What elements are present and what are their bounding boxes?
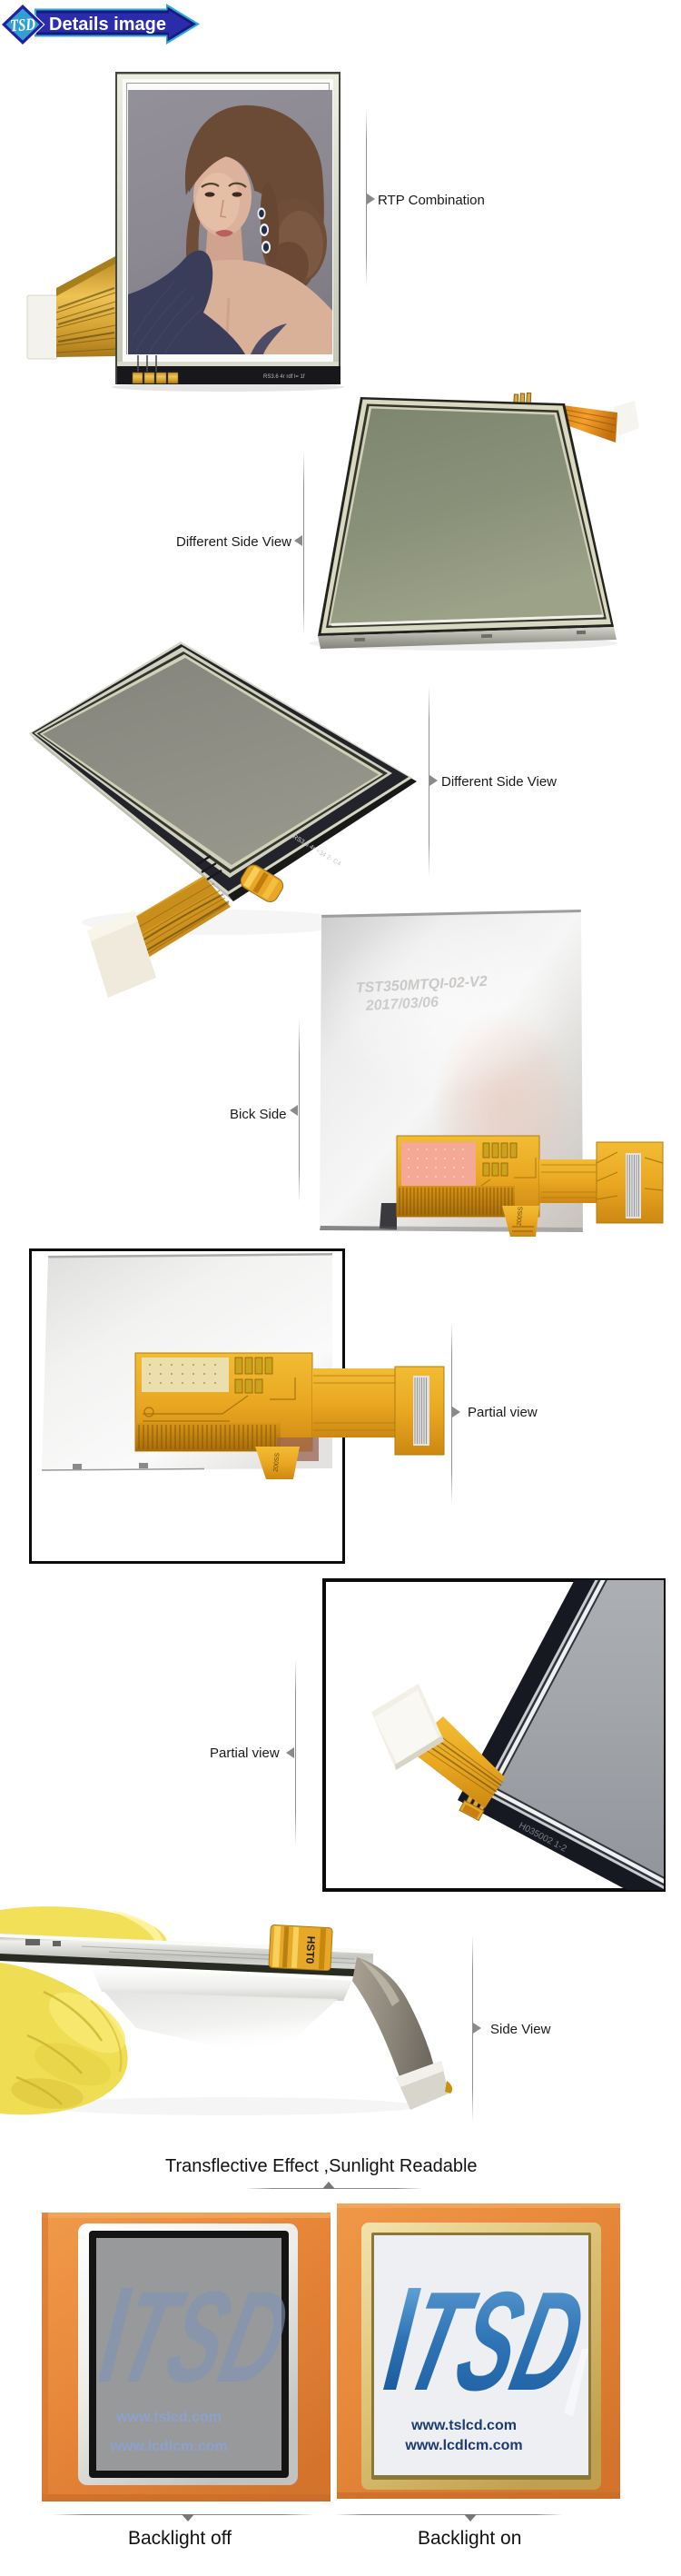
svg-text:TSD: TSD — [9, 15, 36, 36]
svg-text:www.lcdlcm.com: www.lcdlcm.com — [109, 2439, 227, 2454]
svg-text:www.tslcd.com: www.tslcd.com — [115, 2410, 222, 2425]
svg-text:www.tslcd.com: www.tslcd.com — [410, 2418, 517, 2433]
svg-text:RS3.6 4r rdf l= 1f: RS3.6 4r rdf l= 1f — [263, 374, 305, 380]
svg-text:www.lcdlcm.com: www.lcdlcm.com — [404, 2438, 522, 2453]
svg-text:HST0: HST0 — [303, 1935, 318, 1964]
svg-text:Details image: Details image — [49, 15, 166, 35]
